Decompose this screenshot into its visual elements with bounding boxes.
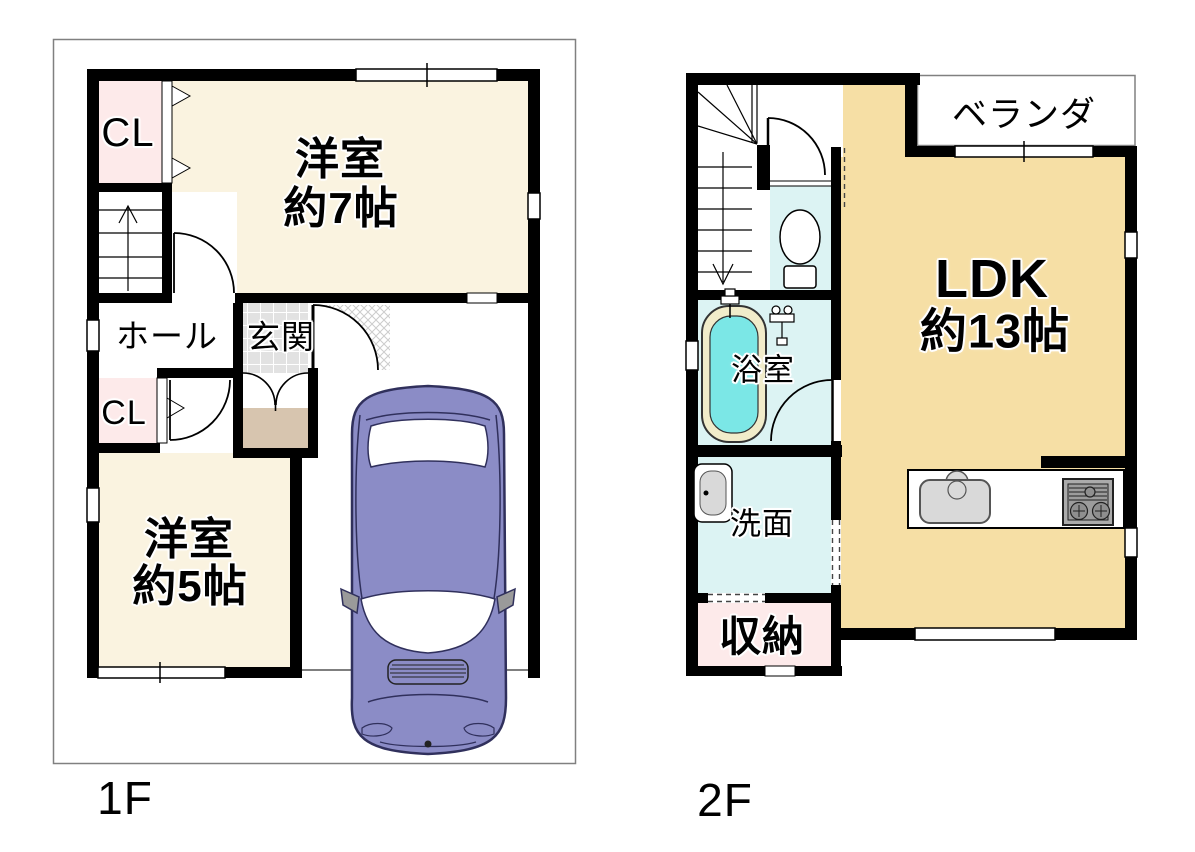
car-icon xyxy=(341,386,515,754)
stove-icon xyxy=(1063,479,1113,525)
room-label-western-5-line2: 約5帖 xyxy=(132,565,247,609)
room-ldk-floor xyxy=(841,157,1125,628)
window-icon xyxy=(467,293,497,303)
window-icon xyxy=(915,628,1055,640)
room-label-storage: 収納 xyxy=(719,616,805,658)
entrance-double-door-icon xyxy=(243,373,308,411)
room-label-closet-upper: CL xyxy=(101,113,154,153)
bath-faucet-icon xyxy=(721,296,739,304)
floorplan-image: CL 洋室 約7帖 ホール 玄関 CL 洋室 約5帖 1F ベランダ LDK 約… xyxy=(0,0,1195,852)
window-icon xyxy=(1125,528,1137,557)
room-label-washroom: 洗面 xyxy=(730,509,794,540)
room-label-hall: ホール xyxy=(116,320,218,353)
washbasin-icon xyxy=(694,464,732,522)
room-label-ldk-line1: LDK xyxy=(935,252,1049,306)
window-icon xyxy=(98,667,225,678)
window-icon xyxy=(1125,232,1137,258)
window-icon xyxy=(686,341,698,370)
room-label-bathroom: 浴室 xyxy=(731,355,795,386)
door-opening xyxy=(765,666,795,676)
window-icon xyxy=(87,320,99,351)
entry-door-icon xyxy=(313,305,390,370)
kitchen-counter xyxy=(908,470,1124,528)
floor-label-1f: 1F xyxy=(97,775,153,821)
toilet-icon xyxy=(780,210,820,288)
room-label-western-7-line2: 約7帖 xyxy=(283,187,398,231)
room-label-western-7-line1: 洋室 xyxy=(295,138,385,182)
room-label-veranda: ベランダ xyxy=(952,98,1096,133)
entrance-step xyxy=(243,408,308,448)
window-icon xyxy=(528,193,540,219)
room-ldk-floor xyxy=(843,85,905,157)
stairs-up-icon xyxy=(93,206,162,291)
room-label-entrance: 玄関 xyxy=(247,321,315,354)
stairs-down-icon xyxy=(698,85,757,284)
toilet-door-icon xyxy=(768,118,831,186)
corridor-floor xyxy=(172,192,237,293)
floor-label-2f: 2F xyxy=(697,777,753,823)
window-icon xyxy=(87,488,99,522)
room-label-ldk-line2: 約13帖 xyxy=(920,308,1070,355)
room-label-closet-lower: CL xyxy=(101,396,146,430)
room-label-western-5-line1: 洋室 xyxy=(144,518,234,562)
